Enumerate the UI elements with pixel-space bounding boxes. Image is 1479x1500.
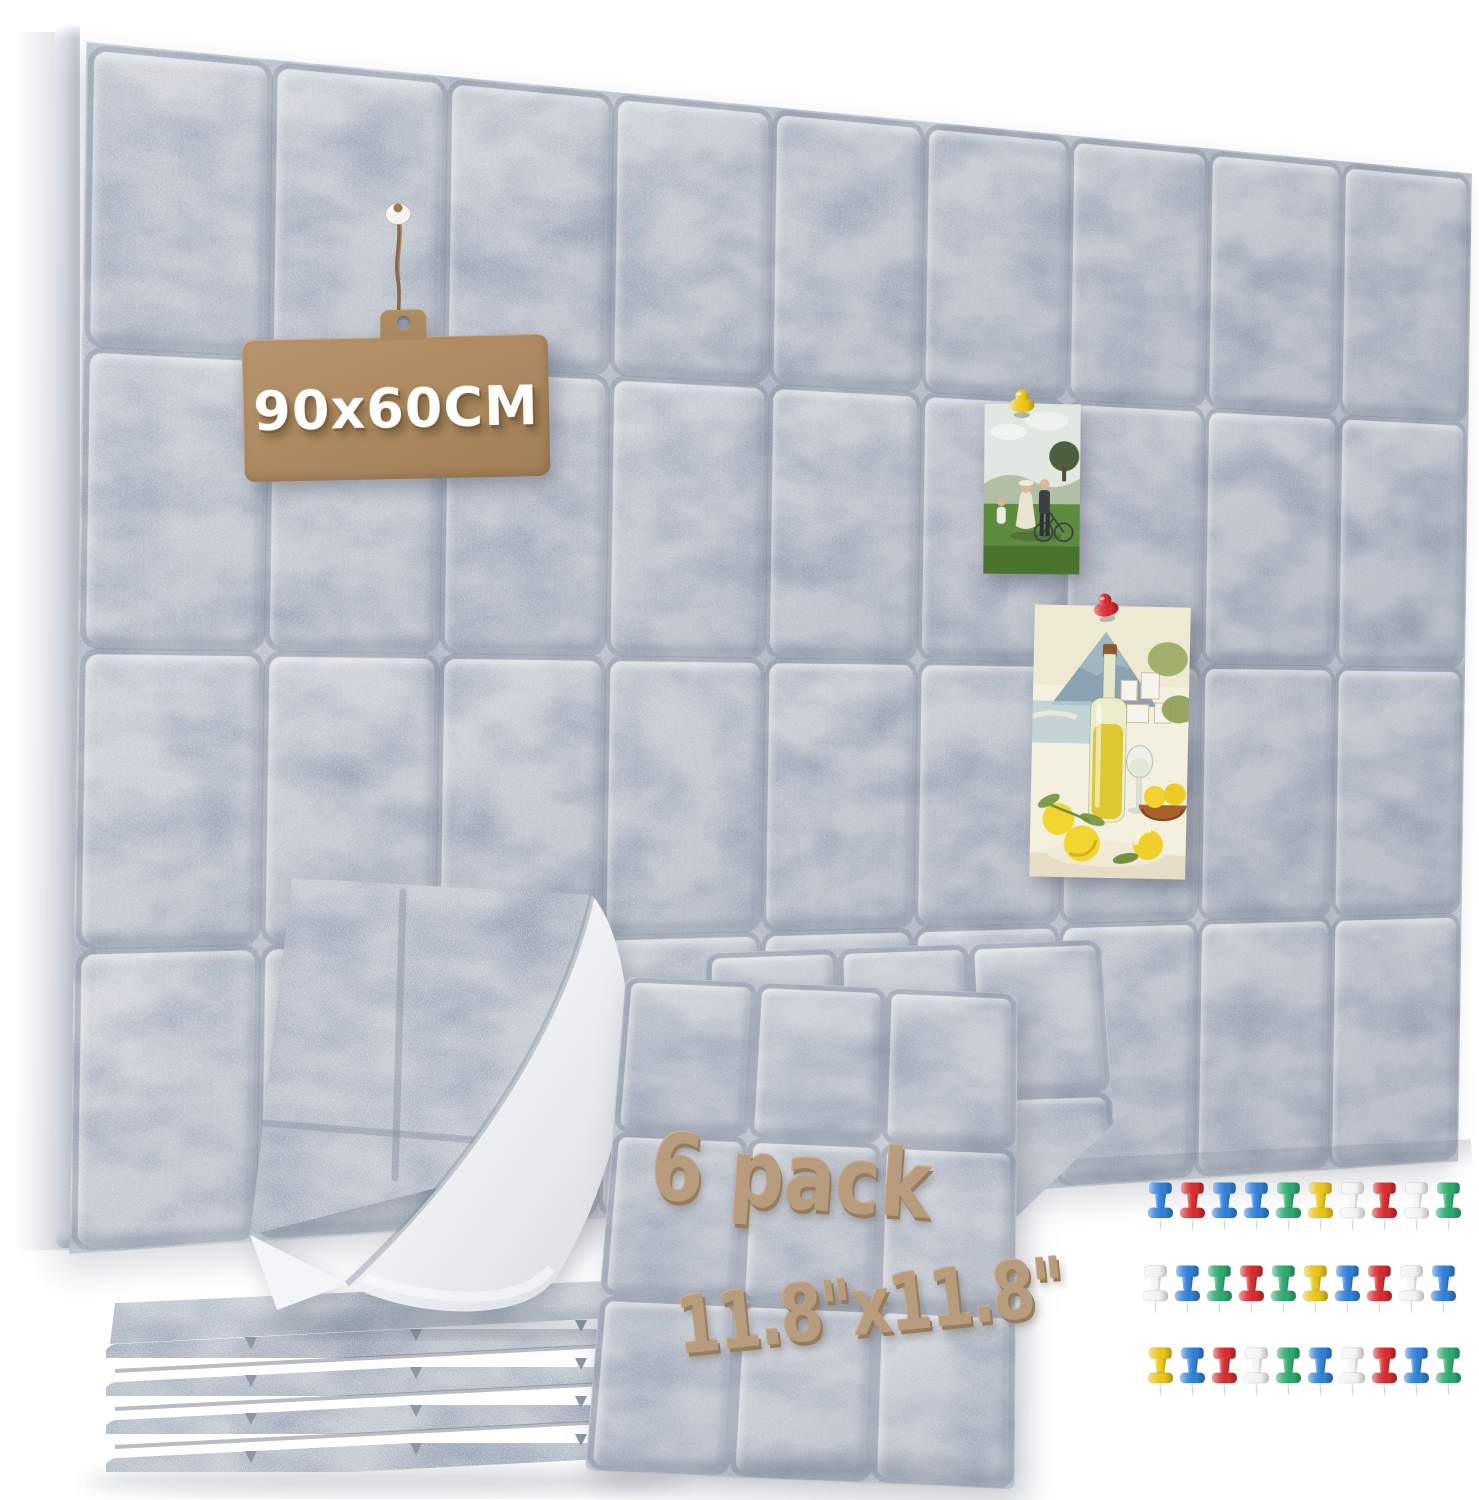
- pack-count-label: 6 pack: [647, 1112, 935, 1240]
- push-pin-yellow: [1301, 1264, 1330, 1316]
- push-pin-white: [1338, 1181, 1367, 1233]
- felt-tile: [774, 115, 921, 387]
- push-pin-green: [1269, 1264, 1298, 1316]
- push-pin-blue: [1178, 1346, 1207, 1398]
- felt-tile: [1202, 668, 1331, 915]
- felt-tile: [1336, 670, 1460, 912]
- push-pin-yellow: [1146, 1346, 1175, 1398]
- felt-tile: [1339, 419, 1463, 663]
- panel-floor-shadow: [598, 1452, 1038, 1480]
- felt-tile: [448, 84, 609, 369]
- push-pin-blue: [1429, 1264, 1458, 1316]
- push-pin-blue: [1242, 1181, 1271, 1233]
- felt-tile: [1343, 168, 1467, 416]
- felt-tile: [611, 380, 765, 652]
- photo-pin-yellow: [1002, 388, 1042, 420]
- product-photo-felt-pin-board: 90x60CM: [0, 0, 1479, 1500]
- push-pin-red: [1178, 1181, 1207, 1233]
- push-pin-green: [1434, 1346, 1463, 1398]
- felt-tile: [1071, 143, 1206, 403]
- felt-tile: [1332, 918, 1456, 1163]
- push-pin-red: [1370, 1346, 1399, 1398]
- push-pin-red: [1365, 1264, 1394, 1316]
- push-pin-white: [1397, 1264, 1426, 1316]
- push-pin-red: [1370, 1181, 1399, 1233]
- felt-tile: [1210, 156, 1339, 410]
- push-pin-green: [1274, 1181, 1303, 1233]
- size-tag-label: 90x60CM: [253, 374, 540, 443]
- size-tag-tab: [380, 309, 427, 340]
- photo-pin-red: [1084, 589, 1128, 626]
- pin-row-1: [1146, 1181, 1463, 1233]
- pin-row-3: [1146, 1346, 1463, 1398]
- size-tag-hole: [397, 316, 410, 329]
- fan-panel-front-tiles: [593, 982, 1011, 1482]
- felt-tile: [770, 389, 917, 655]
- push-pin-green: [1205, 1264, 1234, 1316]
- push-pin-red: [1237, 1264, 1266, 1316]
- felt-tile: [888, 994, 1011, 1144]
- pin-row-2: [1141, 1264, 1458, 1316]
- push-pin-red: [1210, 1346, 1239, 1398]
- felt-tile: [1199, 921, 1328, 1171]
- push-pin-blue: [1210, 1181, 1239, 1233]
- felt-tile: [766, 663, 913, 927]
- push-pin-blue: [1146, 1181, 1175, 1233]
- felt-tile: [925, 129, 1066, 395]
- push-pin-blue: [1306, 1346, 1335, 1398]
- felt-tile: [620, 982, 751, 1132]
- felt-tile: [754, 988, 881, 1138]
- push-pin-white: [1141, 1264, 1170, 1316]
- pinned-photo-family-bicycle: [983, 404, 1080, 575]
- push-pin-blue: [1333, 1264, 1362, 1316]
- push-pin-white: [1338, 1346, 1367, 1398]
- felt-tile: [1206, 412, 1335, 661]
- push-pin-yellow: [1306, 1181, 1335, 1233]
- felt-tile: [615, 100, 769, 378]
- felt-tile: [90, 51, 267, 351]
- push-pin-white: [1402, 1181, 1431, 1233]
- push-pin-blue: [1173, 1264, 1202, 1316]
- push-pin-blue: [1402, 1346, 1431, 1398]
- felt-tile: [86, 352, 263, 645]
- size-tag: 90x60CM: [242, 334, 551, 482]
- push-pin-white: [1242, 1346, 1271, 1398]
- push-pin-green: [1434, 1181, 1463, 1233]
- fan-panel-front: [585, 976, 1017, 1489]
- push-pin-green: [1274, 1346, 1303, 1398]
- pinned-photo-lemon-painting: [1029, 604, 1191, 879]
